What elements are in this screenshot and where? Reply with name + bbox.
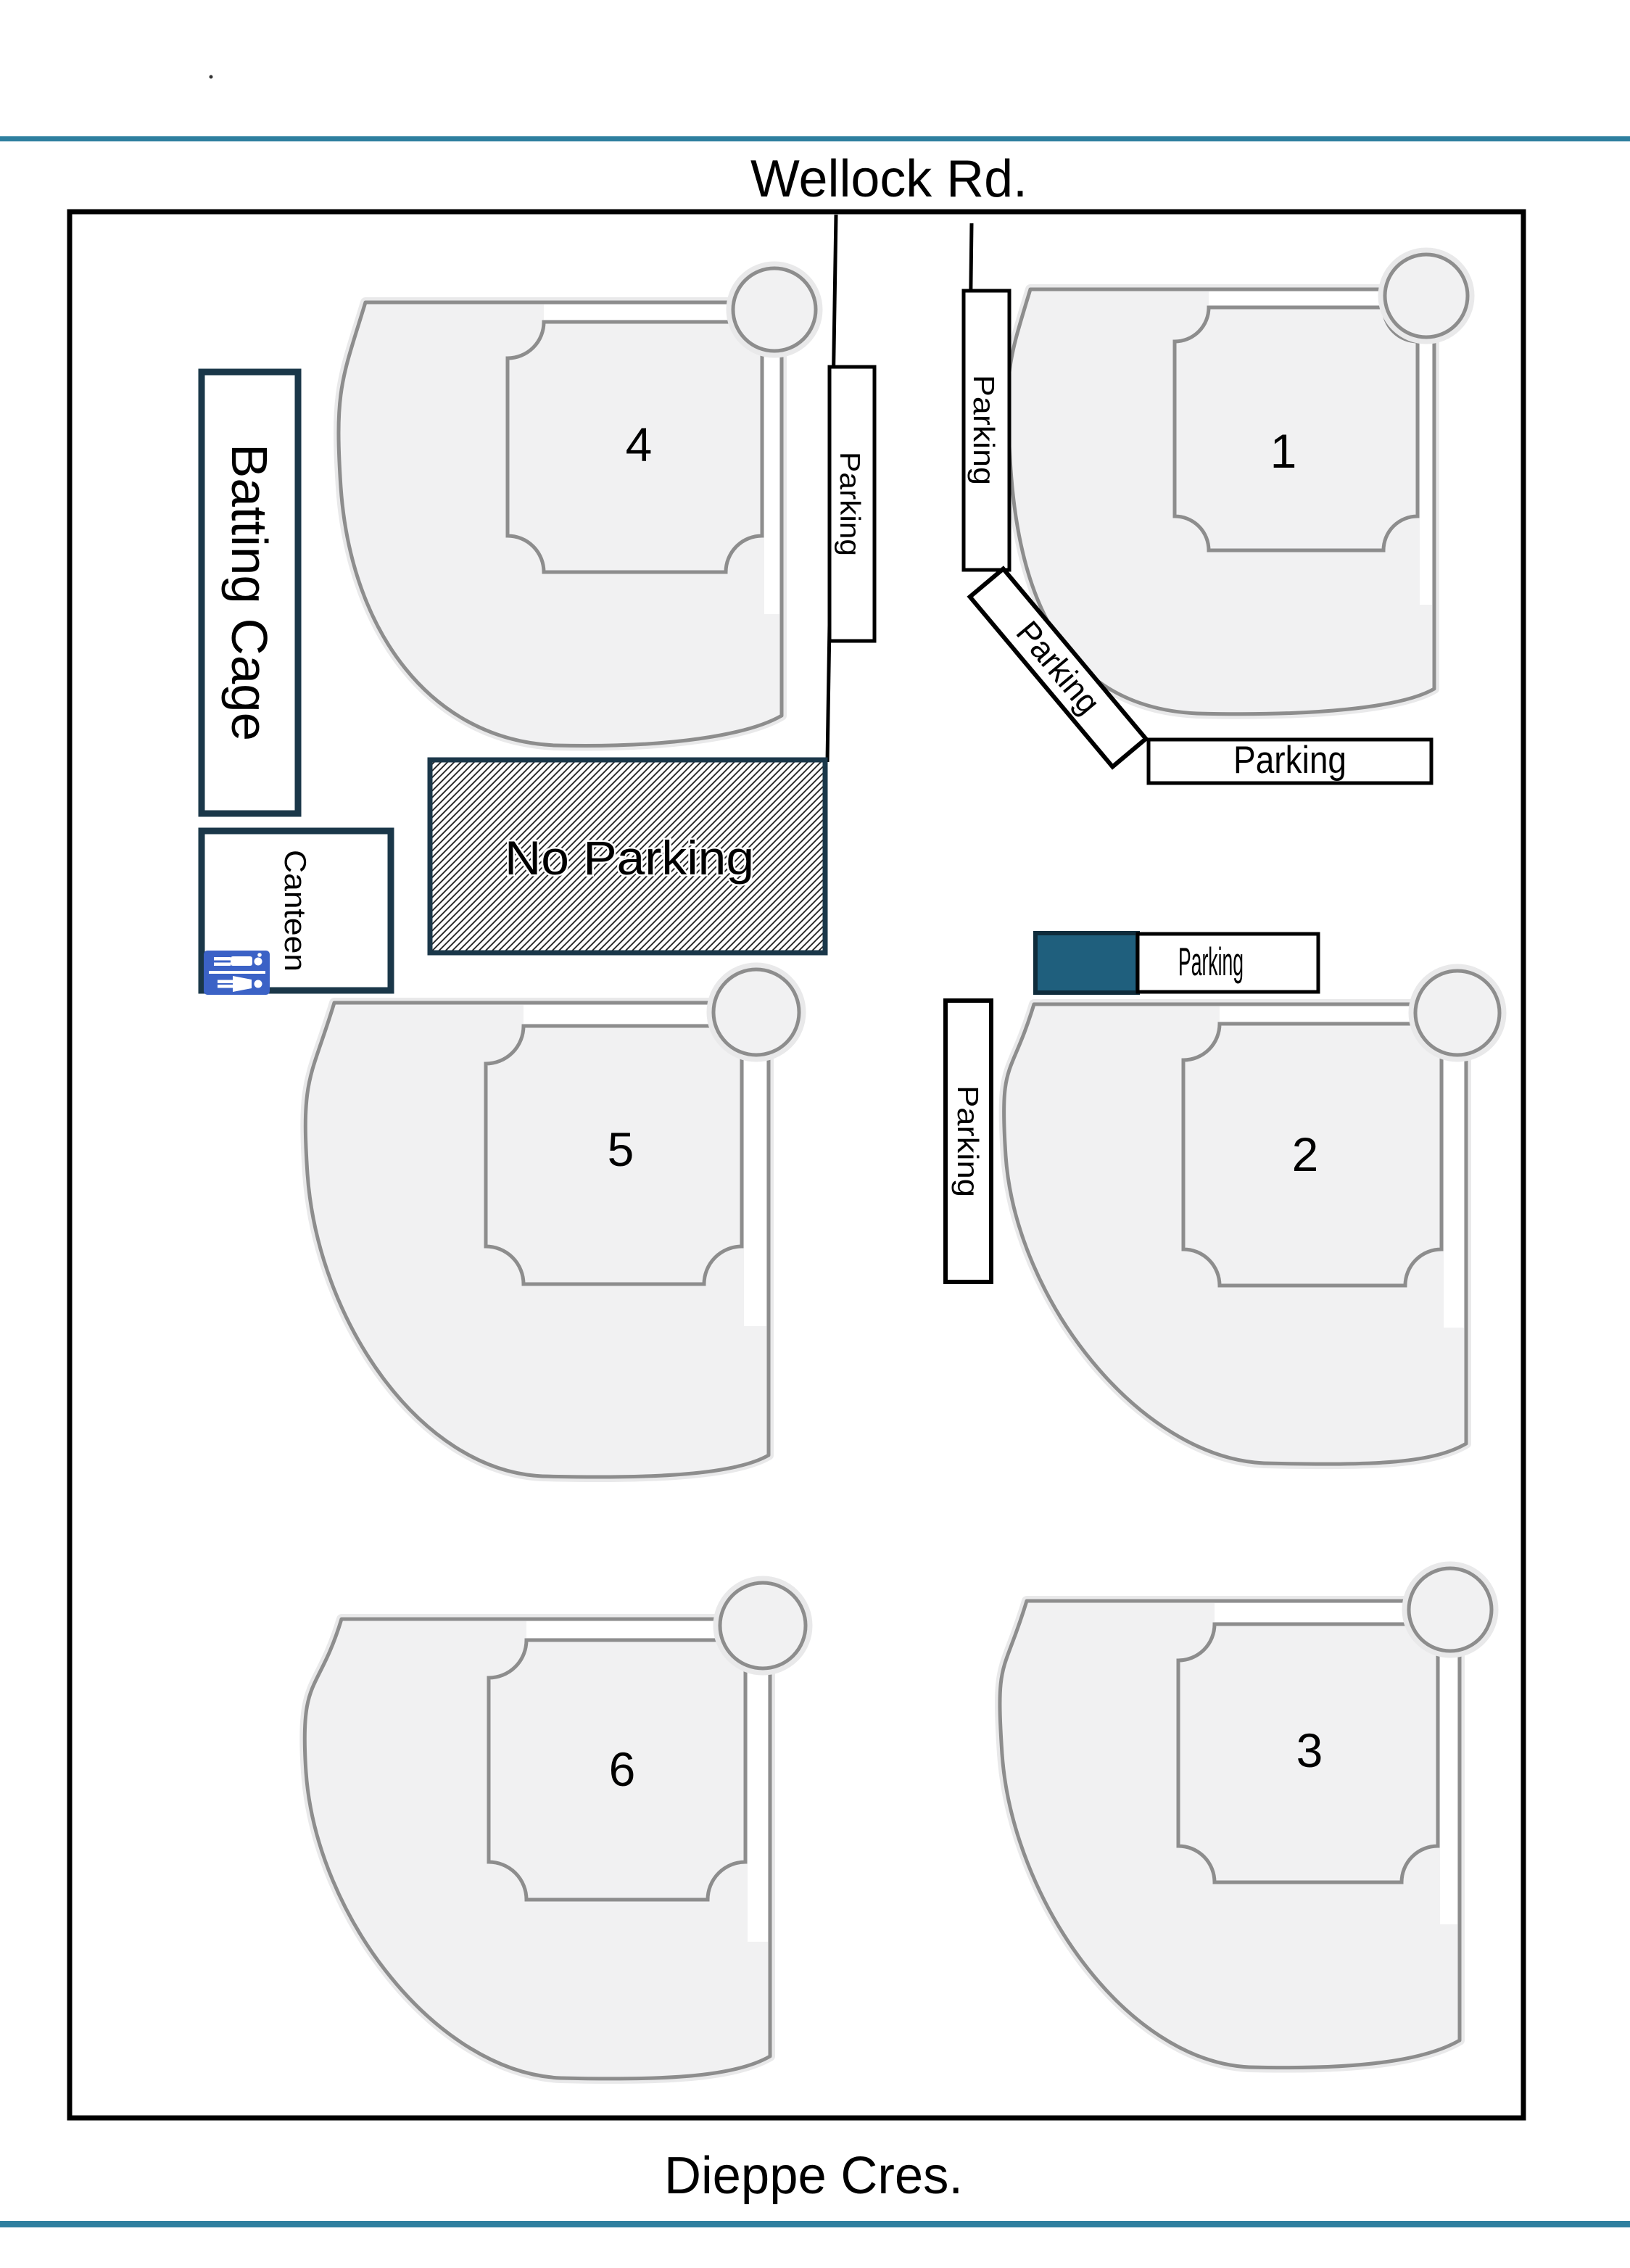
svg-text:4: 4 (626, 418, 653, 471)
svg-text:No Parking: No Parking (505, 831, 754, 885)
svg-text:Dieppe Cres.: Dieppe Cres. (664, 2147, 963, 2205)
svg-text:2: 2 (1292, 1127, 1319, 1181)
svg-text:1: 1 (1270, 424, 1297, 478)
svg-text:3: 3 (1296, 1723, 1323, 1777)
svg-text:Parking: Parking (951, 1085, 985, 1197)
svg-text:Parking: Parking (834, 452, 865, 556)
svg-text:Batting Cage: Batting Cage (221, 444, 278, 741)
svg-text:Parking: Parking (1233, 739, 1346, 782)
svg-text:Parking: Parking (1178, 939, 1244, 984)
svg-text:Parking: Parking (967, 375, 1001, 485)
svg-text:6: 6 (609, 1742, 636, 1796)
svg-text:5: 5 (608, 1122, 634, 1176)
svg-text:Wellock Rd.: Wellock Rd. (750, 150, 1027, 208)
svg-text:Canteen: Canteen (278, 850, 313, 972)
